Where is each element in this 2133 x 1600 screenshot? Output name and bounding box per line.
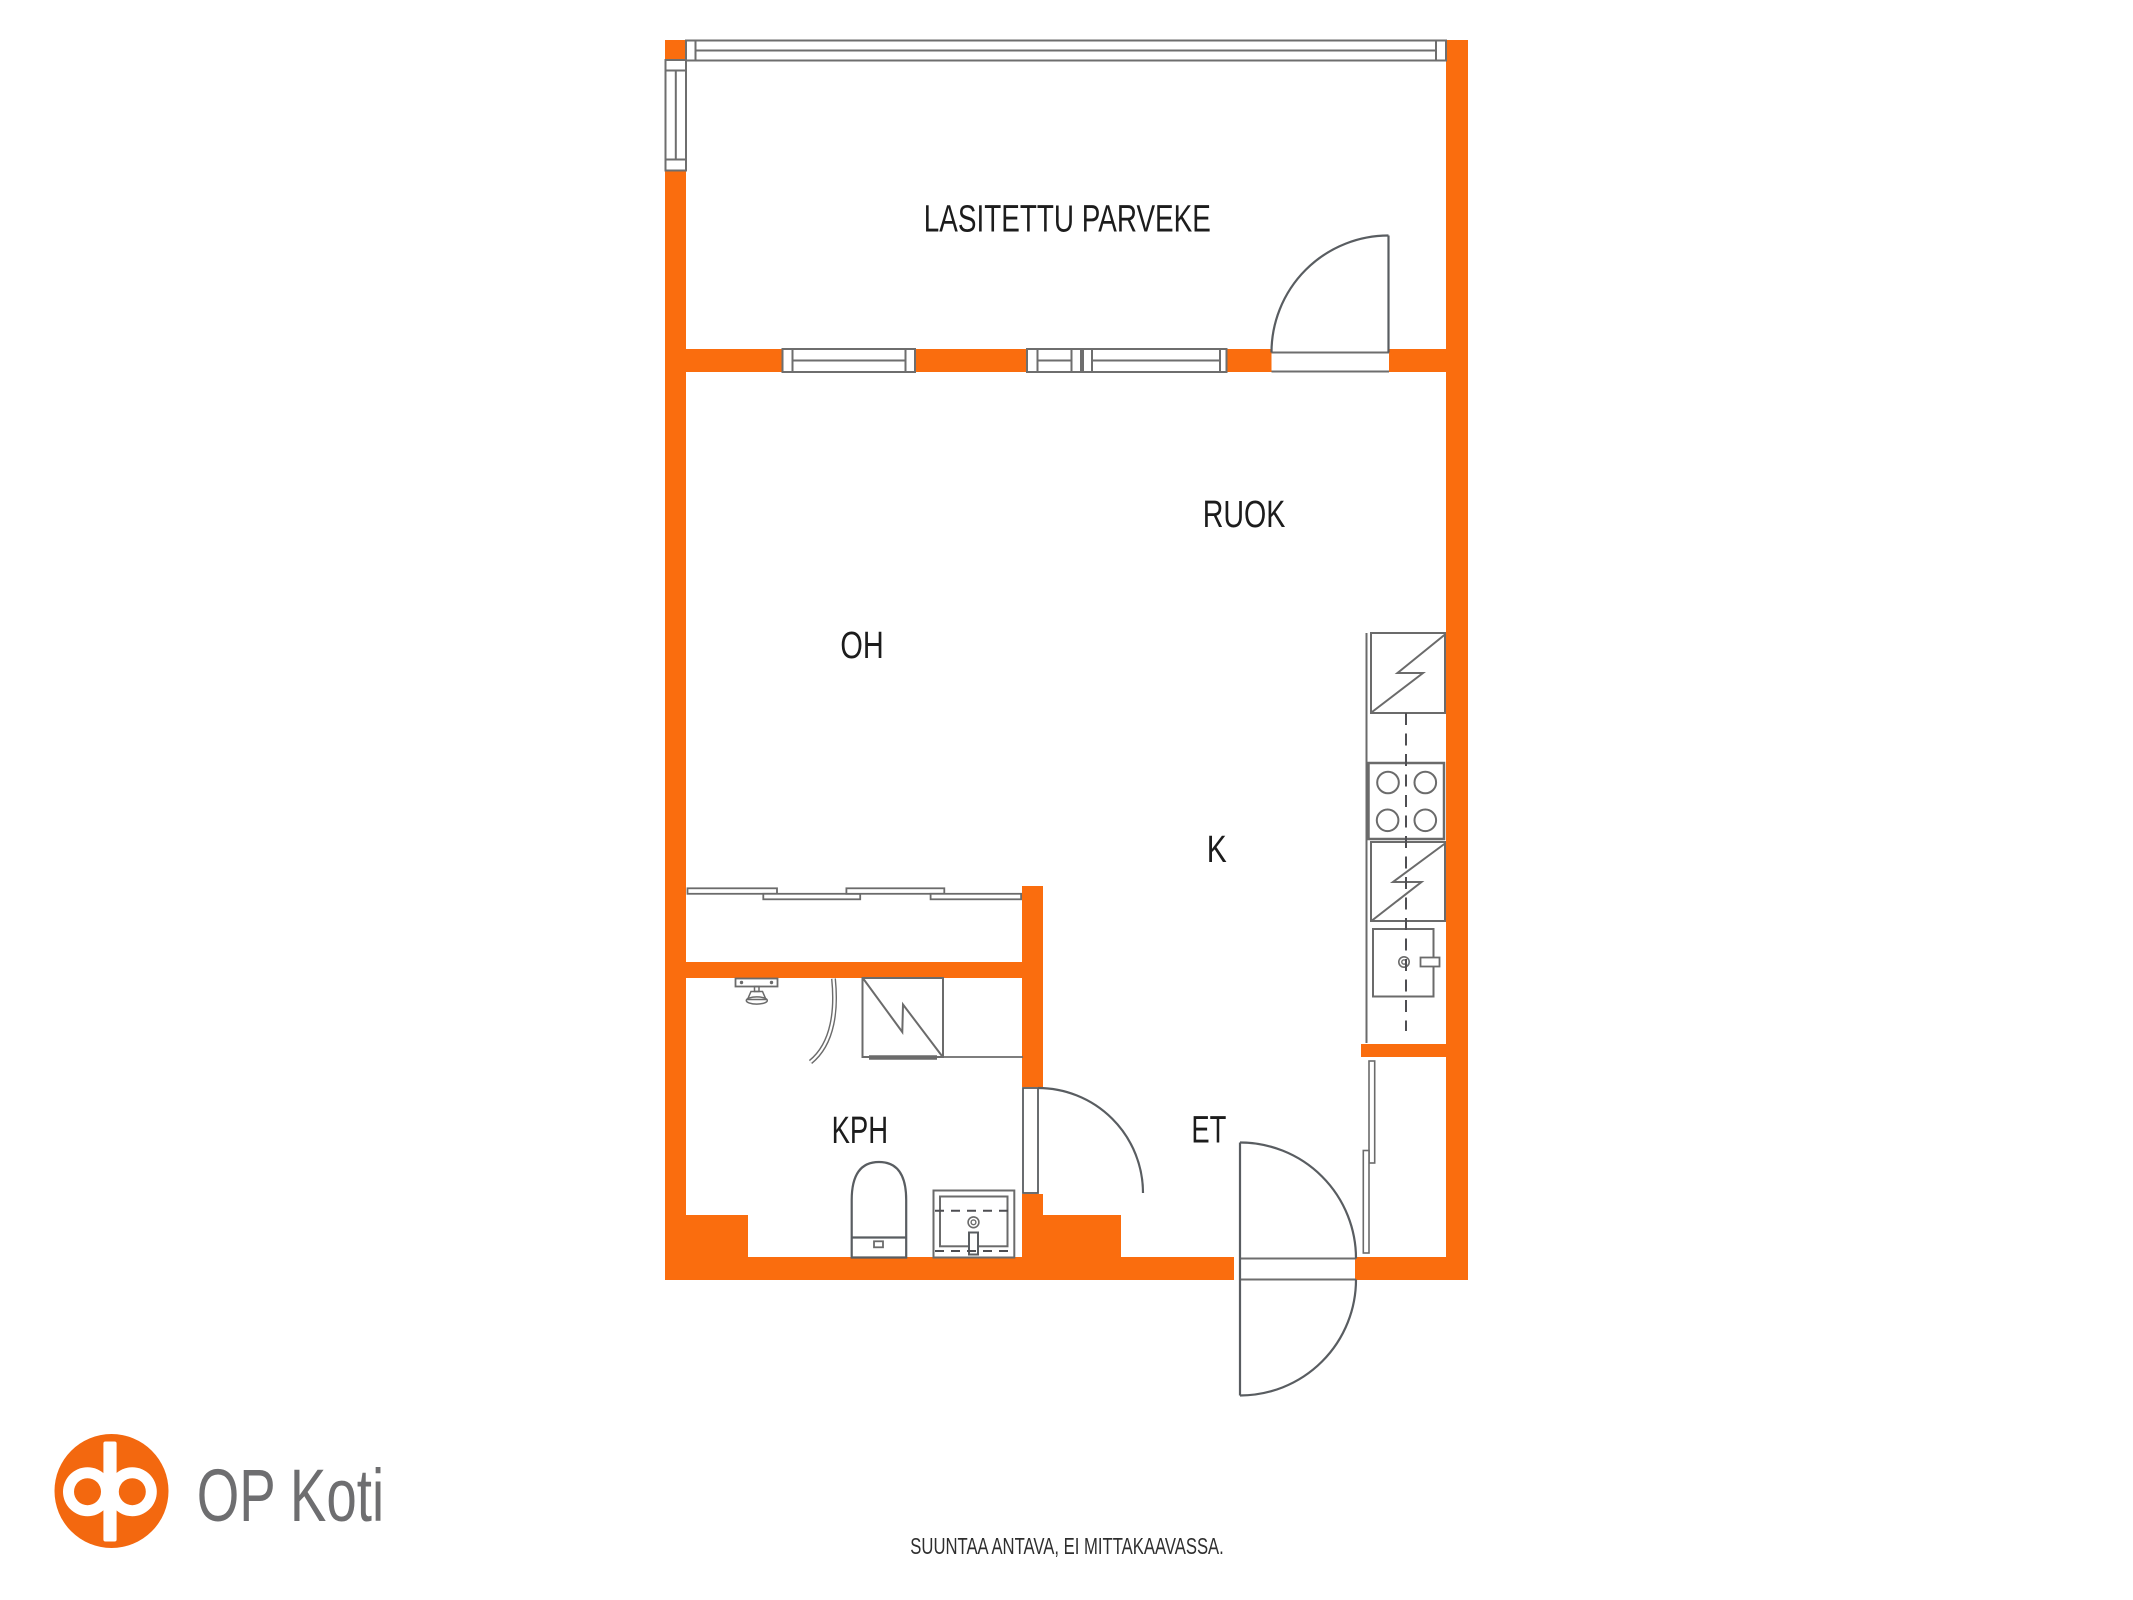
svg-text:LASITETTU PARVEKE: LASITETTU PARVEKE (924, 198, 1211, 240)
svg-text:ET: ET (1191, 1110, 1226, 1152)
svg-text:OP Koti: OP Koti (197, 1454, 384, 1537)
svg-text:OH: OH (840, 625, 883, 667)
svg-text:KPH: KPH (832, 1110, 889, 1152)
svg-text:K: K (1207, 829, 1227, 871)
svg-text:RUOK: RUOK (1203, 494, 1286, 536)
svg-text:SUUNTAA ANTAVA, EI MITTAKAAVAS: SUUNTAA ANTAVA, EI MITTAKAAVASSA. (910, 1533, 1224, 1559)
